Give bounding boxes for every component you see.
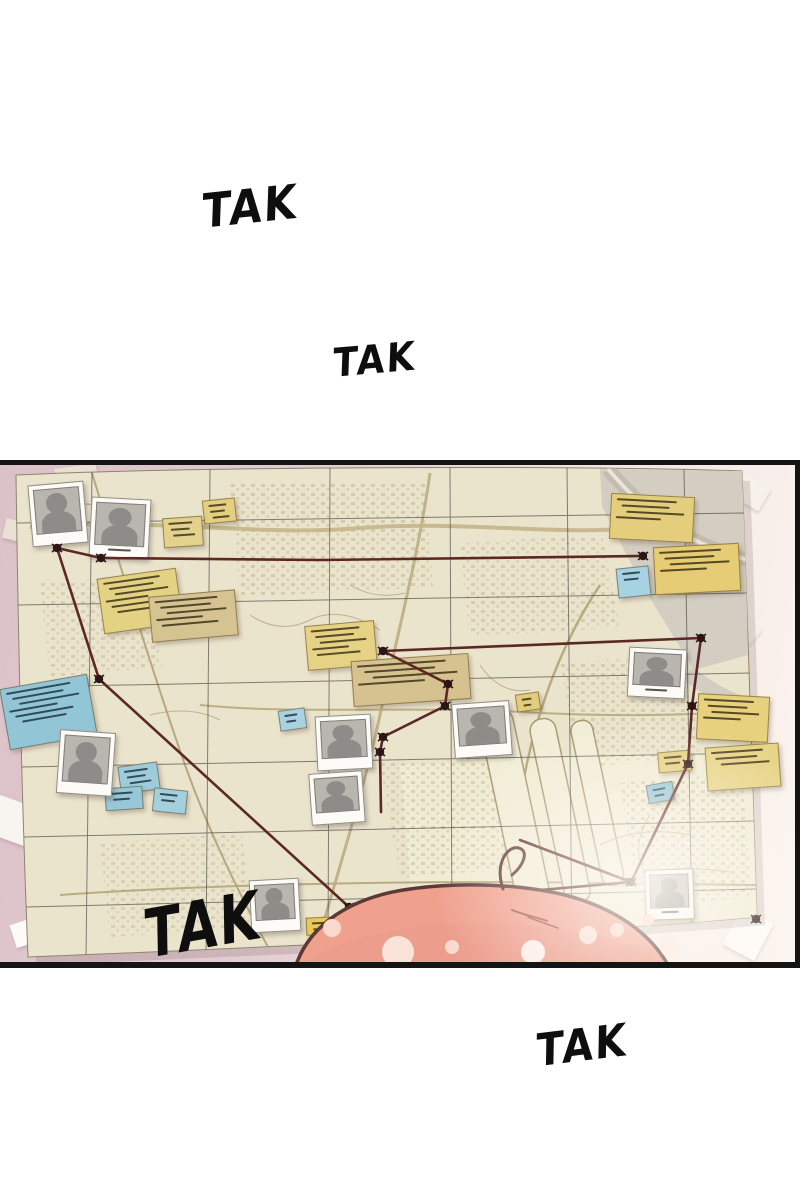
sticky-note-yellow [306, 916, 337, 936]
scribble-line [704, 698, 754, 703]
scribble-line [171, 528, 190, 531]
sfx-text: TAK [144, 882, 261, 970]
scribble-line [523, 704, 531, 707]
scribble-line [664, 755, 682, 759]
scribble-line [708, 705, 748, 709]
sticky-note-yellow [202, 497, 237, 524]
scribble-line [173, 533, 195, 537]
scribble-line [313, 928, 325, 931]
scribble-line [716, 755, 758, 760]
scribble-line [626, 511, 684, 516]
sticky-note-yellow [696, 693, 770, 743]
scribble-line [210, 509, 224, 512]
sticky-note-blue [152, 787, 188, 814]
scribble-line [358, 679, 425, 686]
scribble-line [320, 638, 366, 644]
suspect-photo [315, 714, 374, 772]
scribble-line [208, 503, 226, 507]
scribble-line [616, 516, 661, 520]
scribble-line [373, 671, 458, 679]
sfx-tak-3: TAK [144, 882, 261, 970]
person-silhouette-icon [632, 652, 682, 687]
photo-caption-scribble [645, 688, 667, 691]
sticky-note-yellow [657, 750, 692, 774]
scribble-line [652, 787, 665, 791]
person-silhouette-icon [649, 873, 689, 908]
suspect-photo [56, 729, 116, 797]
scribble-line [286, 719, 296, 722]
scribble-line [622, 571, 640, 575]
sfx-tak-2: TAK [332, 337, 417, 384]
sfx-text: TAK [201, 178, 299, 236]
scribble-line [659, 549, 721, 554]
scribble-line [660, 567, 707, 571]
scribble-line [312, 645, 349, 650]
scribble-line [160, 799, 175, 803]
scribble-line [284, 713, 297, 717]
suspect-photo [308, 770, 365, 826]
scribble-line [666, 762, 680, 765]
sfx-text: TAK [332, 337, 417, 384]
sfx-tak-1: TAK [201, 178, 299, 236]
scribble-line [317, 650, 361, 656]
scribble-line [522, 697, 532, 700]
scribble-line [312, 922, 327, 925]
paper-scrap [722, 907, 774, 961]
sticky-note-blue [616, 565, 652, 598]
person-silhouette-icon [320, 719, 368, 759]
scribble-line [622, 504, 670, 509]
scribble-line [127, 774, 146, 779]
suspect-photo [88, 496, 151, 559]
scribble-line [711, 749, 763, 755]
scribble-line [654, 793, 664, 797]
scribble-line [111, 791, 133, 795]
photo-caption-scribble [661, 911, 679, 914]
sticky-note-yellow [162, 516, 204, 549]
person-silhouette-icon [456, 705, 507, 746]
sfx-text: TAK [536, 1018, 628, 1074]
suspect-photo [451, 700, 513, 759]
scribble-line [665, 555, 715, 560]
suspect-photo [627, 647, 688, 700]
sticky-note-yellow [351, 653, 472, 707]
person-silhouette-icon [94, 502, 146, 548]
scribble-line [670, 560, 729, 565]
sticky-note-yellow [148, 589, 239, 642]
scribble-line [166, 607, 226, 614]
scribble-line [113, 798, 131, 801]
scribble-line [624, 577, 638, 580]
scribble-line [160, 793, 179, 797]
scribble-line [162, 620, 219, 627]
sticky-note-blue [646, 781, 676, 804]
sticky-note-yellow [705, 742, 782, 791]
scribble-line [168, 521, 192, 525]
sticky-note-blue [278, 707, 308, 732]
suspect-photo [27, 481, 88, 548]
comic-panel [0, 460, 800, 968]
scribble-line [311, 626, 360, 632]
scribble-line [617, 498, 677, 503]
scribble-line [703, 716, 741, 720]
scribble-line [315, 633, 354, 638]
scribble-line [160, 602, 210, 608]
suspect-photo [644, 868, 695, 921]
sticky-note-yellow [653, 543, 741, 595]
scribble-line [720, 760, 770, 765]
scribble-line [712, 711, 760, 716]
scribble-line [129, 779, 151, 784]
sticky-note-yellow [515, 691, 541, 712]
scribble-line [124, 768, 148, 773]
photo-caption-scribble [107, 548, 130, 551]
person-silhouette-icon [33, 486, 83, 535]
person-silhouette-icon [62, 734, 111, 784]
scribble-line [156, 615, 203, 621]
person-silhouette-icon [314, 776, 360, 814]
scribble-line [213, 515, 230, 519]
sticky-note-yellow [609, 493, 695, 543]
sfx-tak-4: TAK [536, 1018, 628, 1074]
